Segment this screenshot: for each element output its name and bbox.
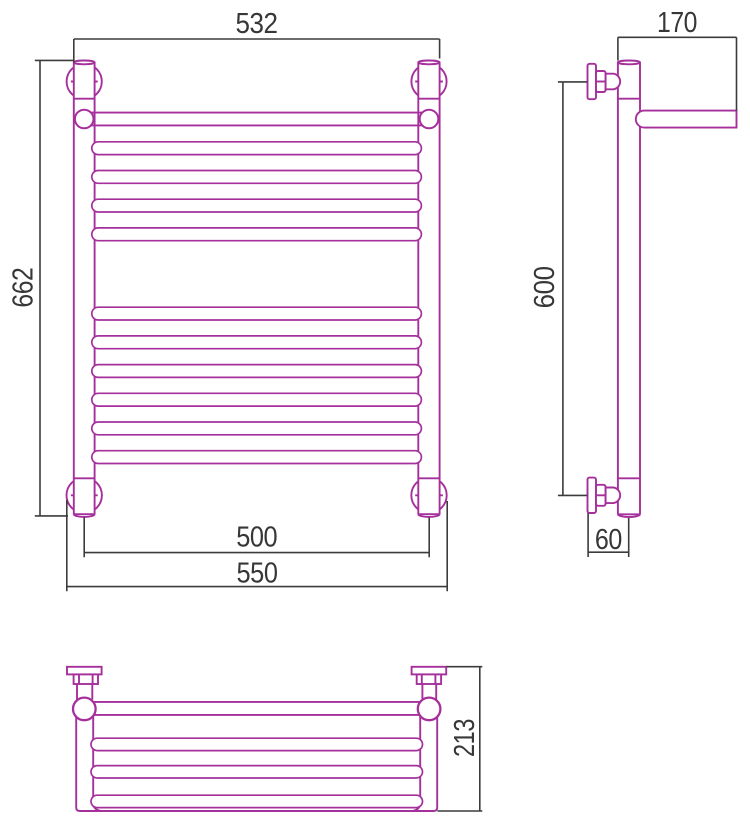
svg-text:662: 662 (8, 268, 40, 308)
svg-text:500: 500 (236, 522, 277, 554)
svg-text:600: 600 (529, 266, 561, 308)
svg-text:170: 170 (657, 7, 697, 39)
svg-text:60: 60 (595, 524, 622, 556)
svg-text:532: 532 (236, 8, 278, 40)
svg-text:550: 550 (237, 558, 278, 590)
svg-text:213: 213 (449, 719, 481, 757)
